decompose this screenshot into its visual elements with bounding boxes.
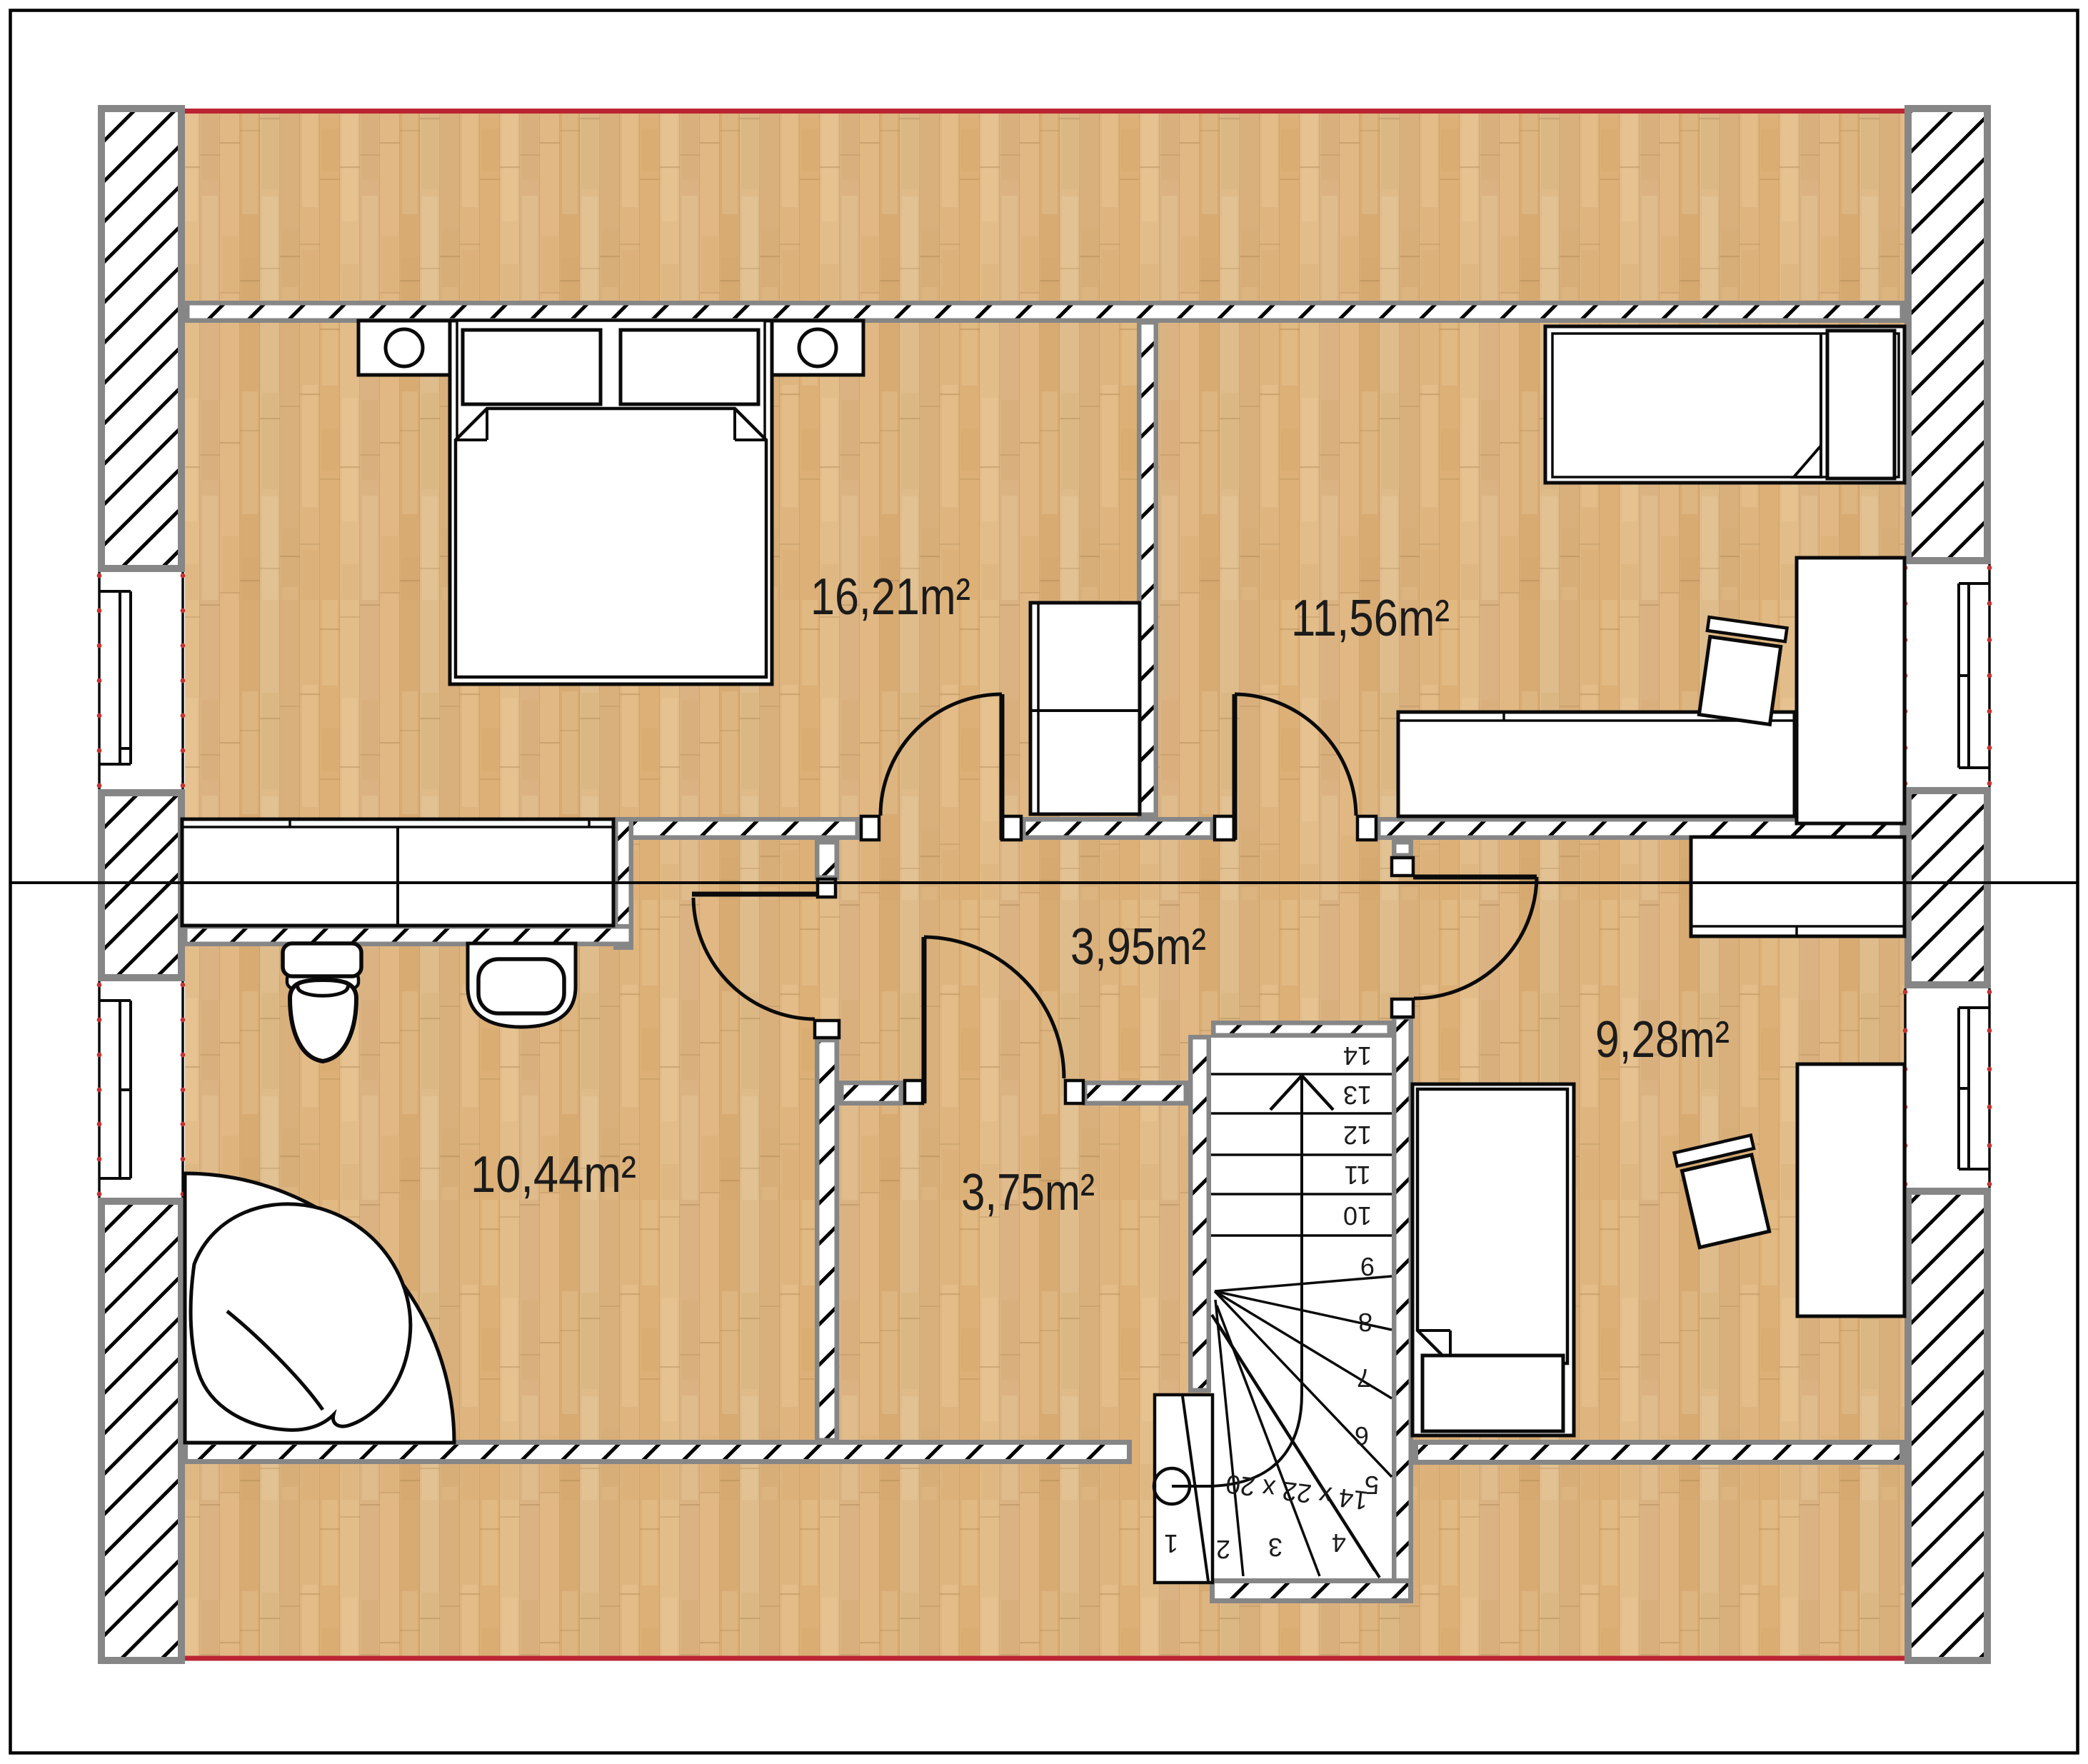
svg-text:9,28m²: 9,28m² — [1595, 1011, 1730, 1068]
svg-text:11: 11 — [1344, 1161, 1370, 1190]
svg-text:3,95m²: 3,95m² — [1070, 918, 1206, 976]
svg-text:13: 13 — [1343, 1081, 1372, 1110]
svg-text:14: 14 — [1343, 1041, 1372, 1071]
svg-text:3,75m²: 3,75m² — [961, 1164, 1095, 1221]
svg-text:3: 3 — [1268, 1533, 1283, 1562]
svg-text:7: 7 — [1357, 1363, 1371, 1393]
svg-text:8: 8 — [1358, 1308, 1372, 1337]
svg-text:10: 10 — [1343, 1201, 1372, 1231]
svg-text:2: 2 — [1216, 1535, 1230, 1564]
svg-text:11,56m²: 11,56m² — [1291, 590, 1450, 647]
svg-text:1: 1 — [1164, 1529, 1178, 1558]
svg-text:4: 4 — [1332, 1528, 1346, 1558]
svg-text:12: 12 — [1343, 1121, 1372, 1150]
svg-text:10,44m²: 10,44m² — [471, 1146, 636, 1203]
svg-text:16,21m²: 16,21m² — [810, 568, 970, 626]
svg-text:9: 9 — [1360, 1252, 1375, 1281]
svg-text:6: 6 — [1355, 1421, 1369, 1450]
